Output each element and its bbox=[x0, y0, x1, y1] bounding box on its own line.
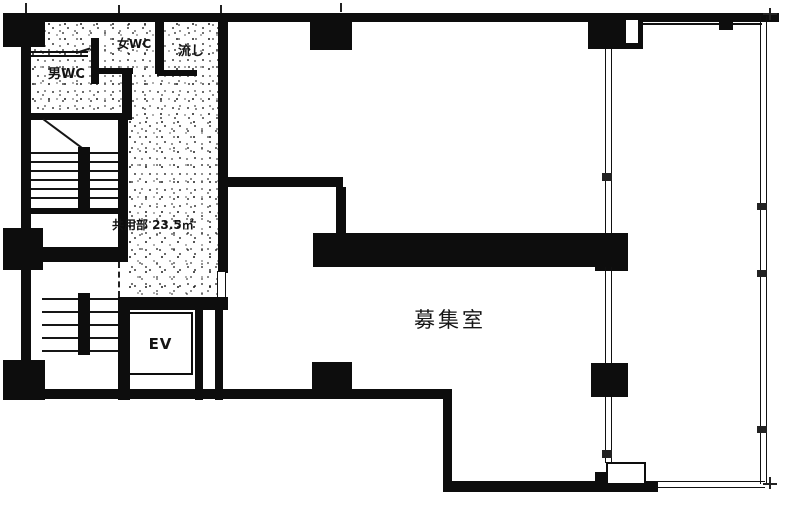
wall-common-right bbox=[218, 13, 228, 273]
stair-tread bbox=[31, 161, 118, 163]
wall-wc-divider bbox=[91, 38, 99, 84]
grid-tick bbox=[25, 3, 27, 13]
stair-tread bbox=[31, 197, 118, 199]
wall-mid-vertical bbox=[336, 187, 346, 235]
elevator-label: EV bbox=[149, 335, 173, 353]
stair-tread bbox=[31, 170, 118, 172]
column-bottom-left bbox=[3, 360, 45, 400]
stair-tread bbox=[31, 179, 118, 181]
common-area-label: 共用部 23.5㎡ bbox=[112, 216, 194, 233]
wall-top bbox=[3, 13, 779, 22]
wall-ev-top bbox=[118, 297, 228, 310]
stair-tread bbox=[31, 152, 118, 154]
stair-tread bbox=[31, 188, 118, 190]
womens-wc-label: 女WC bbox=[117, 35, 151, 52]
common-area-floor-texture-mid bbox=[128, 120, 218, 302]
window-line-mid-middle bbox=[605, 267, 612, 363]
column-top-middle bbox=[310, 13, 352, 50]
bottom-window-box bbox=[606, 462, 646, 485]
mullion-mark bbox=[602, 173, 612, 181]
wall-bottom-left-block bbox=[3, 389, 452, 399]
grid-tick bbox=[340, 3, 342, 12]
mullion-mark bbox=[602, 450, 612, 458]
mullion-mark bbox=[757, 426, 767, 433]
sink-label: 流し bbox=[178, 40, 204, 59]
corner-cross-bottom-right-h bbox=[763, 483, 777, 485]
wall-beam-right-end bbox=[595, 233, 628, 271]
wall-sink-bottom bbox=[157, 70, 197, 76]
mullion-mark bbox=[757, 270, 767, 277]
grid-tick bbox=[220, 5, 222, 13]
wall-step-vertical bbox=[443, 389, 452, 491]
wall-ev-shaft-right bbox=[215, 308, 223, 400]
column-bottom-right bbox=[591, 363, 628, 397]
wall-left bbox=[21, 13, 31, 400]
wall-below-womens-wc bbox=[122, 73, 132, 114]
wall-mid-horizontal bbox=[228, 177, 343, 187]
column-top-left bbox=[3, 13, 45, 47]
window-line-right-edge bbox=[760, 16, 767, 484]
mullion-mark bbox=[757, 203, 767, 210]
vacant-room-label: 募集室 bbox=[414, 304, 486, 334]
wall-beam-horizontal bbox=[313, 233, 627, 267]
wall-ev-right bbox=[195, 310, 203, 400]
stair-tread-last-thick bbox=[31, 208, 118, 214]
elevator-cab: EV bbox=[128, 312, 193, 375]
wall-stair-mid-landing bbox=[43, 247, 128, 262]
mens-wc-counter-line-2 bbox=[31, 55, 88, 57]
window-line-mid-upper bbox=[605, 49, 612, 233]
column-top-right-notch bbox=[626, 20, 638, 43]
window-line-bottom-right bbox=[655, 481, 765, 488]
grid-tick bbox=[118, 5, 120, 13]
wall-stair-right bbox=[118, 113, 128, 262]
window-line-top-right bbox=[643, 23, 762, 25]
wall-womens-wc-right bbox=[155, 20, 164, 74]
corner-cross-top-right-h bbox=[763, 13, 777, 15]
floor-plan: EV 女WC 男WC 流し 共用部 23.5㎡ 募集室 bbox=[0, 0, 787, 509]
stair-upper-divider bbox=[78, 147, 90, 213]
stair-opening-dashed-line bbox=[118, 262, 120, 297]
stair-lower-divider bbox=[78, 293, 90, 355]
column-mid-left bbox=[3, 228, 43, 270]
column-top-far-right-small bbox=[719, 19, 733, 30]
bottom-step-block bbox=[595, 472, 608, 483]
column-bottom-middle bbox=[312, 362, 352, 398]
mens-wc-label: 男WC bbox=[48, 63, 85, 82]
wall-stair-top bbox=[31, 113, 132, 120]
